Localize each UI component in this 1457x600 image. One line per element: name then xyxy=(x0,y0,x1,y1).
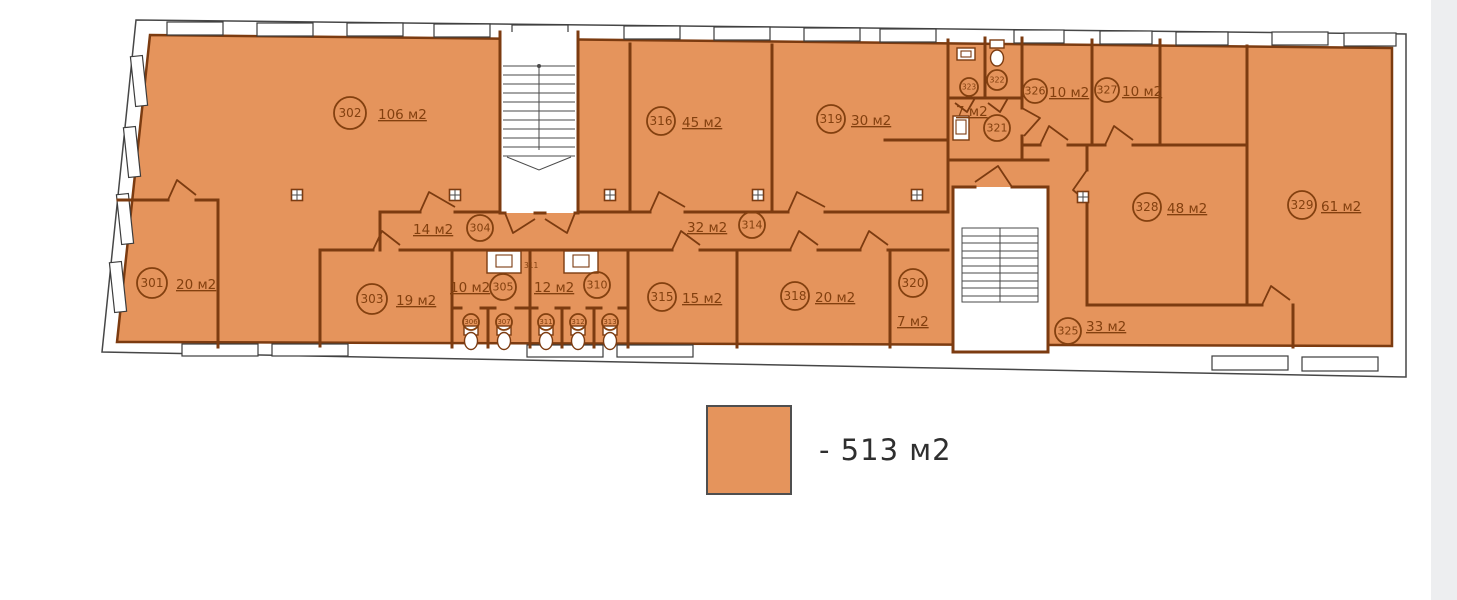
toilet-icon xyxy=(990,40,1004,66)
room-area: 12 м2 xyxy=(534,280,574,296)
room-area: 19 м2 xyxy=(396,293,436,309)
room-number: 302 xyxy=(339,106,362,120)
room-area: 106 м2 xyxy=(378,107,427,123)
legend-label: - 513 м2 xyxy=(819,433,952,467)
room-number: 303 xyxy=(361,292,384,306)
room-area: 33 м2 xyxy=(1086,319,1126,335)
room-area: 20 м2 xyxy=(176,277,216,293)
room-area: 32 м2 xyxy=(687,220,727,236)
room-number: 319 xyxy=(820,112,843,126)
stairwell-right xyxy=(953,187,1048,352)
room-number: 323 xyxy=(962,83,977,92)
room-number: 306 xyxy=(464,318,478,326)
room-number: 313 xyxy=(603,318,616,326)
room-area: 48 м2 xyxy=(1167,201,1207,217)
sink-icon xyxy=(564,251,598,273)
legend: - 513 м2 xyxy=(706,405,952,495)
room-area: 10 м2 xyxy=(1049,85,1089,101)
room-number: 305 xyxy=(493,281,514,294)
room-number: 320 xyxy=(902,276,925,290)
tiny-label: 311 xyxy=(524,261,539,270)
room-area: 10 м2 xyxy=(1122,84,1162,100)
room-area: 14 м2 xyxy=(413,222,453,238)
room-number: 304 xyxy=(470,222,491,235)
room-number: 312 xyxy=(571,318,584,326)
room-area: 10 м2 xyxy=(450,280,490,296)
room-number: 322 xyxy=(989,76,1004,85)
room-number: 329 xyxy=(1291,198,1314,212)
room-number: 301 xyxy=(141,276,164,290)
room-number: 321 xyxy=(987,122,1008,135)
stairwell-top xyxy=(500,32,578,213)
room-area: 20 м2 xyxy=(815,290,855,306)
room-area: 30 м2 xyxy=(851,113,891,129)
room-number: 307 xyxy=(497,318,510,326)
room-number: 318 xyxy=(784,289,807,303)
room-number: 310 xyxy=(587,279,608,292)
room-area: 7 м2 xyxy=(956,104,988,120)
sink-icon xyxy=(957,48,975,60)
room-number: 314 xyxy=(742,219,763,232)
floor-plan-drawing: 30120 м2302106 м230319 м230414 м230510 м… xyxy=(0,0,1457,600)
legend-swatch xyxy=(706,405,792,495)
room-number: 315 xyxy=(651,290,674,304)
room-area: 7 м2 xyxy=(897,314,929,330)
room-number: 327 xyxy=(1097,84,1118,97)
floor-plan-page: 30120 м2302106 м230319 м230414 м230510 м… xyxy=(0,0,1457,600)
room-number: 328 xyxy=(1136,200,1159,214)
room-area: 45 м2 xyxy=(682,115,722,131)
room-area: 61 м2 xyxy=(1321,199,1361,215)
room-number: 311 xyxy=(539,318,552,326)
room-number: 316 xyxy=(650,114,673,128)
sink-icon xyxy=(487,251,521,273)
room-number: 325 xyxy=(1058,325,1079,338)
room-number: 326 xyxy=(1025,85,1046,98)
room-area: 15 м2 xyxy=(682,291,722,307)
